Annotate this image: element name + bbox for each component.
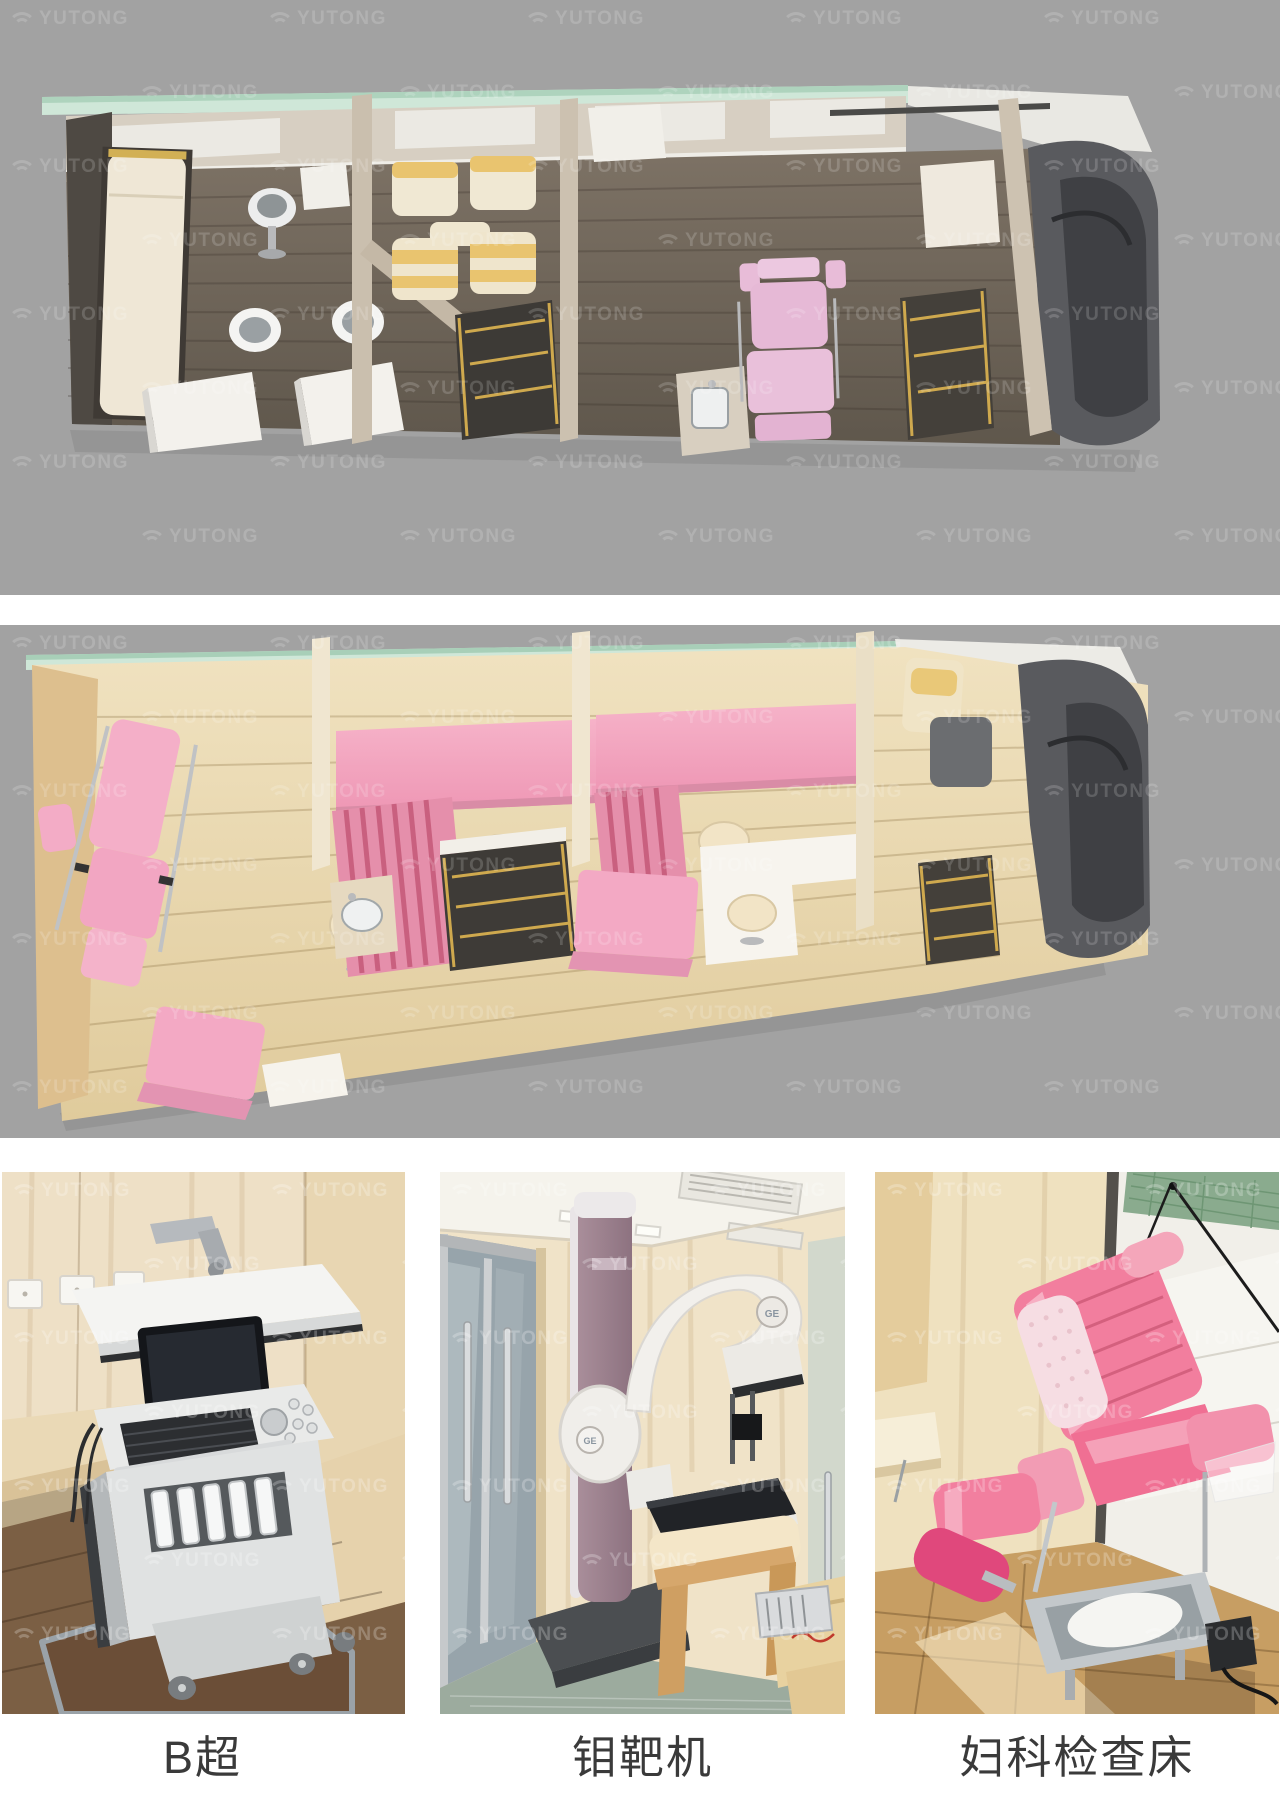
photo-mammography-room: GE GE xyxy=(440,1172,845,1714)
brochure-page: YUTONGYUTONGYUTONGYUTONGYUTONGYUTONGYUTO… xyxy=(0,0,1280,1800)
partition-wall xyxy=(352,94,372,444)
render-panel-middle: YUTONGYUTONGYUTONGYUTONGYUTONGYUTONGYUTO… xyxy=(0,625,1280,1138)
photo-ultrasound-room: YUTONGYUTONGYUTONGYUTONGYUTONGYUTONGYUTO… xyxy=(2,1172,405,1714)
white-chair xyxy=(229,308,281,352)
partition-wall xyxy=(572,631,590,867)
entry-steps xyxy=(440,827,576,971)
caption-gyn-exam-bed: 妇科检查床 xyxy=(875,1722,1279,1794)
gyn-chair-photo-art xyxy=(875,1172,1279,1714)
render-panel-top: YUTONGYUTONGYUTONGYUTONGYUTONGYUTONGYUTO… xyxy=(0,0,1280,595)
rear-steps xyxy=(918,855,1000,965)
pink-wall-compartment-b xyxy=(596,703,870,797)
cab-roof xyxy=(908,86,1152,152)
sink-cabinet xyxy=(330,875,398,959)
entry-steps xyxy=(455,300,560,440)
seat-back xyxy=(930,717,992,787)
power-unit xyxy=(756,1586,832,1637)
partition-wall xyxy=(856,631,874,931)
mammography-photo-art: GE GE xyxy=(440,1172,845,1714)
sink-cabinet xyxy=(676,366,750,456)
pink-wall-compartment-a xyxy=(336,717,640,815)
vehicle-topview-render-2 xyxy=(0,625,1280,1138)
door-handle xyxy=(504,1328,511,1504)
ultrasound-photo-art xyxy=(2,1172,405,1714)
rear-steps xyxy=(900,288,994,440)
white-table xyxy=(588,104,666,162)
ge-logo: GE xyxy=(583,1436,596,1446)
wood-wall-dark-band xyxy=(875,1172,933,1392)
partition-wall xyxy=(312,637,330,871)
caption-mammography: 钼靶机 xyxy=(440,1722,845,1794)
partition-wall xyxy=(560,98,578,442)
pink-bed xyxy=(568,869,699,977)
door-handle xyxy=(464,1322,471,1502)
pink-bench xyxy=(137,1004,266,1120)
ge-logo: GE xyxy=(765,1309,780,1320)
pink-pad xyxy=(37,803,77,853)
photo-gyn-exam-chair: YUTONGYUTONGYUTONGYUTONGYUTONGYUTONGYUTO… xyxy=(875,1172,1279,1714)
ultrasound-machine xyxy=(72,1216,363,1700)
trackball xyxy=(261,1409,287,1435)
exam-bed xyxy=(93,147,192,422)
caption-ultrasound: B超 xyxy=(0,1722,405,1794)
vehicle-topview-render-1 xyxy=(0,0,1280,595)
cabinet xyxy=(920,160,1000,248)
control-box xyxy=(1205,1616,1257,1672)
